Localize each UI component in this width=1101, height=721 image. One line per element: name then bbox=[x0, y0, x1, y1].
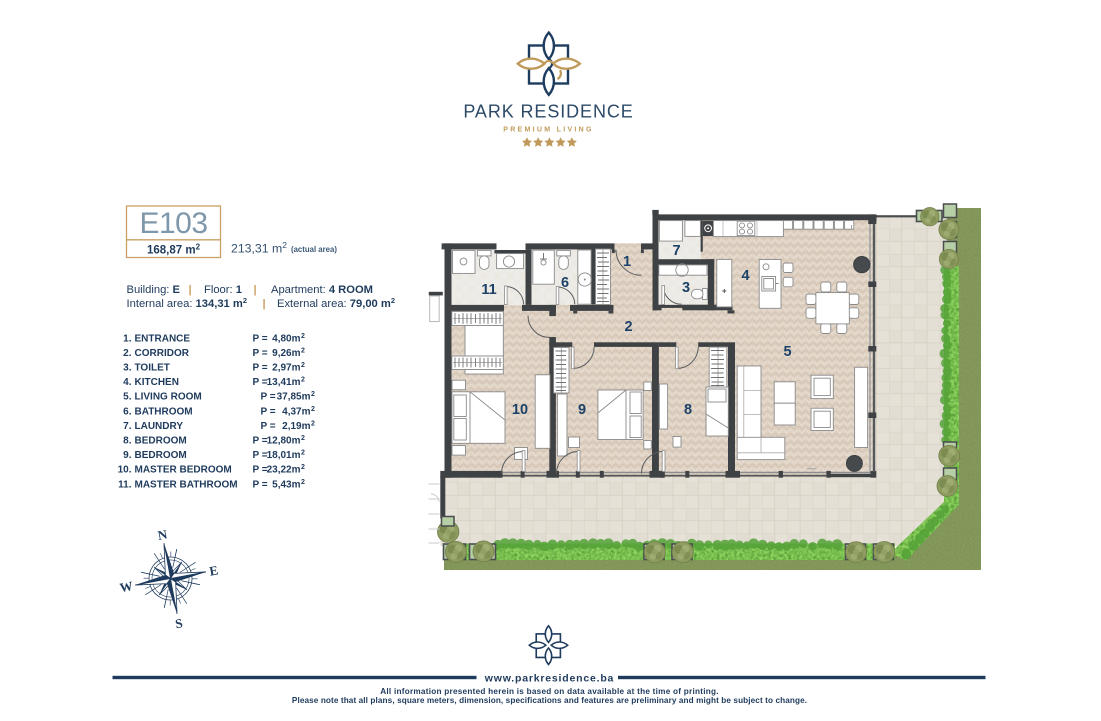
svg-text:2: 2 bbox=[301, 450, 305, 457]
svg-text:Please note that all plans, sq: Please note that all plans, square meter… bbox=[292, 696, 807, 705]
svg-text:Floor: 1: Floor: 1 bbox=[204, 284, 242, 296]
svg-text:2: 2 bbox=[311, 420, 315, 427]
svg-text:P =: P = bbox=[253, 348, 268, 359]
svg-text:8: 8 bbox=[684, 402, 692, 418]
svg-text:|: | bbox=[189, 284, 192, 296]
svg-text:3.: 3. bbox=[123, 363, 132, 374]
svg-text:4: 4 bbox=[741, 268, 749, 284]
svg-text:3: 3 bbox=[682, 280, 690, 296]
svg-text:2: 2 bbox=[311, 406, 315, 413]
svg-text:2: 2 bbox=[301, 333, 305, 340]
svg-text:Apartment: 4 ROOM: Apartment: 4 ROOM bbox=[271, 284, 373, 296]
svg-text:213,31 m2: 213,31 m2 bbox=[231, 240, 287, 256]
svg-text:7: 7 bbox=[672, 243, 680, 259]
svg-text:1.: 1. bbox=[123, 333, 132, 344]
svg-text:2,97m: 2,97m bbox=[272, 363, 300, 374]
svg-text:2.: 2. bbox=[123, 348, 132, 359]
svg-text:P =: P = bbox=[253, 450, 268, 461]
svg-text:2: 2 bbox=[301, 377, 305, 384]
svg-text:External area: 79,00 m2: External area: 79,00 m2 bbox=[277, 296, 395, 310]
svg-text:13,41m: 13,41m bbox=[267, 377, 301, 388]
svg-text:2: 2 bbox=[301, 435, 305, 442]
svg-text:37,85m: 37,85m bbox=[277, 392, 311, 403]
svg-text:2: 2 bbox=[301, 362, 305, 369]
svg-text:9,26m: 9,26m bbox=[272, 348, 300, 359]
svg-text:Internal area: 134,31 m2: Internal area: 134,31 m2 bbox=[127, 296, 248, 310]
svg-text:9: 9 bbox=[578, 402, 586, 418]
svg-text:LAUNDRY: LAUNDRY bbox=[135, 421, 184, 432]
svg-text:P =: P = bbox=[261, 406, 276, 417]
svg-text:2,19m: 2,19m bbox=[282, 421, 310, 432]
svg-text:PREMIUM LIVING: PREMIUM LIVING bbox=[503, 127, 594, 134]
svg-text:P =: P = bbox=[253, 465, 268, 476]
svg-text:2: 2 bbox=[301, 347, 305, 354]
svg-text:12,80m: 12,80m bbox=[267, 436, 301, 447]
svg-text:MASTER BEDROOM: MASTER BEDROOM bbox=[135, 465, 232, 476]
svg-text:LIVING ROOM: LIVING ROOM bbox=[135, 392, 202, 403]
svg-text:www.parkresidence.ba: www.parkresidence.ba bbox=[484, 673, 614, 685]
svg-text:5: 5 bbox=[783, 344, 791, 360]
svg-text:ENTRANCE: ENTRANCE bbox=[135, 333, 191, 344]
svg-text:P =: P = bbox=[261, 421, 276, 432]
svg-text:18,01m: 18,01m bbox=[267, 450, 301, 461]
svg-text:11: 11 bbox=[481, 282, 496, 298]
svg-text:Building: E: Building: E bbox=[127, 284, 181, 296]
svg-text:TOILET: TOILET bbox=[135, 363, 170, 374]
svg-text:6: 6 bbox=[561, 275, 569, 291]
svg-text:4,80m: 4,80m bbox=[272, 333, 300, 344]
svg-text:BEDROOM: BEDROOM bbox=[135, 450, 187, 461]
svg-text:1: 1 bbox=[623, 254, 631, 270]
svg-text:P =: P = bbox=[253, 333, 268, 344]
svg-text:10: 10 bbox=[512, 402, 528, 418]
svg-text:CORRIDOR: CORRIDOR bbox=[135, 348, 190, 359]
svg-text:MASTER BATHROOM: MASTER BATHROOM bbox=[135, 479, 238, 490]
svg-text:7.: 7. bbox=[123, 421, 132, 432]
svg-text:2: 2 bbox=[301, 479, 305, 486]
svg-text:5.: 5. bbox=[123, 392, 132, 403]
svg-text:2: 2 bbox=[311, 391, 315, 398]
svg-text:P =: P = bbox=[253, 363, 268, 374]
svg-text:|: | bbox=[254, 284, 257, 296]
svg-text:W: W bbox=[118, 578, 134, 595]
svg-text:9.: 9. bbox=[123, 450, 132, 461]
svg-text:KITCHEN: KITCHEN bbox=[135, 377, 179, 388]
svg-text:8.: 8. bbox=[123, 436, 132, 447]
svg-text:(actual area): (actual area) bbox=[291, 245, 337, 254]
svg-text:4,37m: 4,37m bbox=[282, 406, 310, 417]
svg-text:23,22m: 23,22m bbox=[267, 465, 301, 476]
svg-text:PARK RESIDENCE: PARK RESIDENCE bbox=[463, 102, 633, 122]
svg-text:P =: P = bbox=[253, 377, 268, 388]
svg-text:10.: 10. bbox=[118, 465, 132, 476]
svg-text:6.: 6. bbox=[123, 406, 132, 417]
svg-text:BEDROOM: BEDROOM bbox=[135, 436, 187, 447]
svg-text:168,87 m2: 168,87 m2 bbox=[147, 243, 201, 257]
svg-text:P =: P = bbox=[253, 436, 268, 447]
svg-text:P =: P = bbox=[261, 392, 276, 403]
svg-text:|: | bbox=[263, 298, 266, 310]
svg-text:P =: P = bbox=[253, 479, 268, 490]
svg-text:BATHROOM: BATHROOM bbox=[135, 406, 193, 417]
svg-text:11.: 11. bbox=[118, 479, 132, 490]
svg-text:4.: 4. bbox=[123, 377, 132, 388]
svg-text:E103: E103 bbox=[139, 207, 207, 240]
svg-text:2: 2 bbox=[624, 319, 632, 335]
svg-text:All information presented here: All information presented herein is base… bbox=[380, 687, 719, 696]
svg-text:2: 2 bbox=[301, 464, 305, 471]
svg-text:5,43m: 5,43m bbox=[272, 479, 300, 490]
